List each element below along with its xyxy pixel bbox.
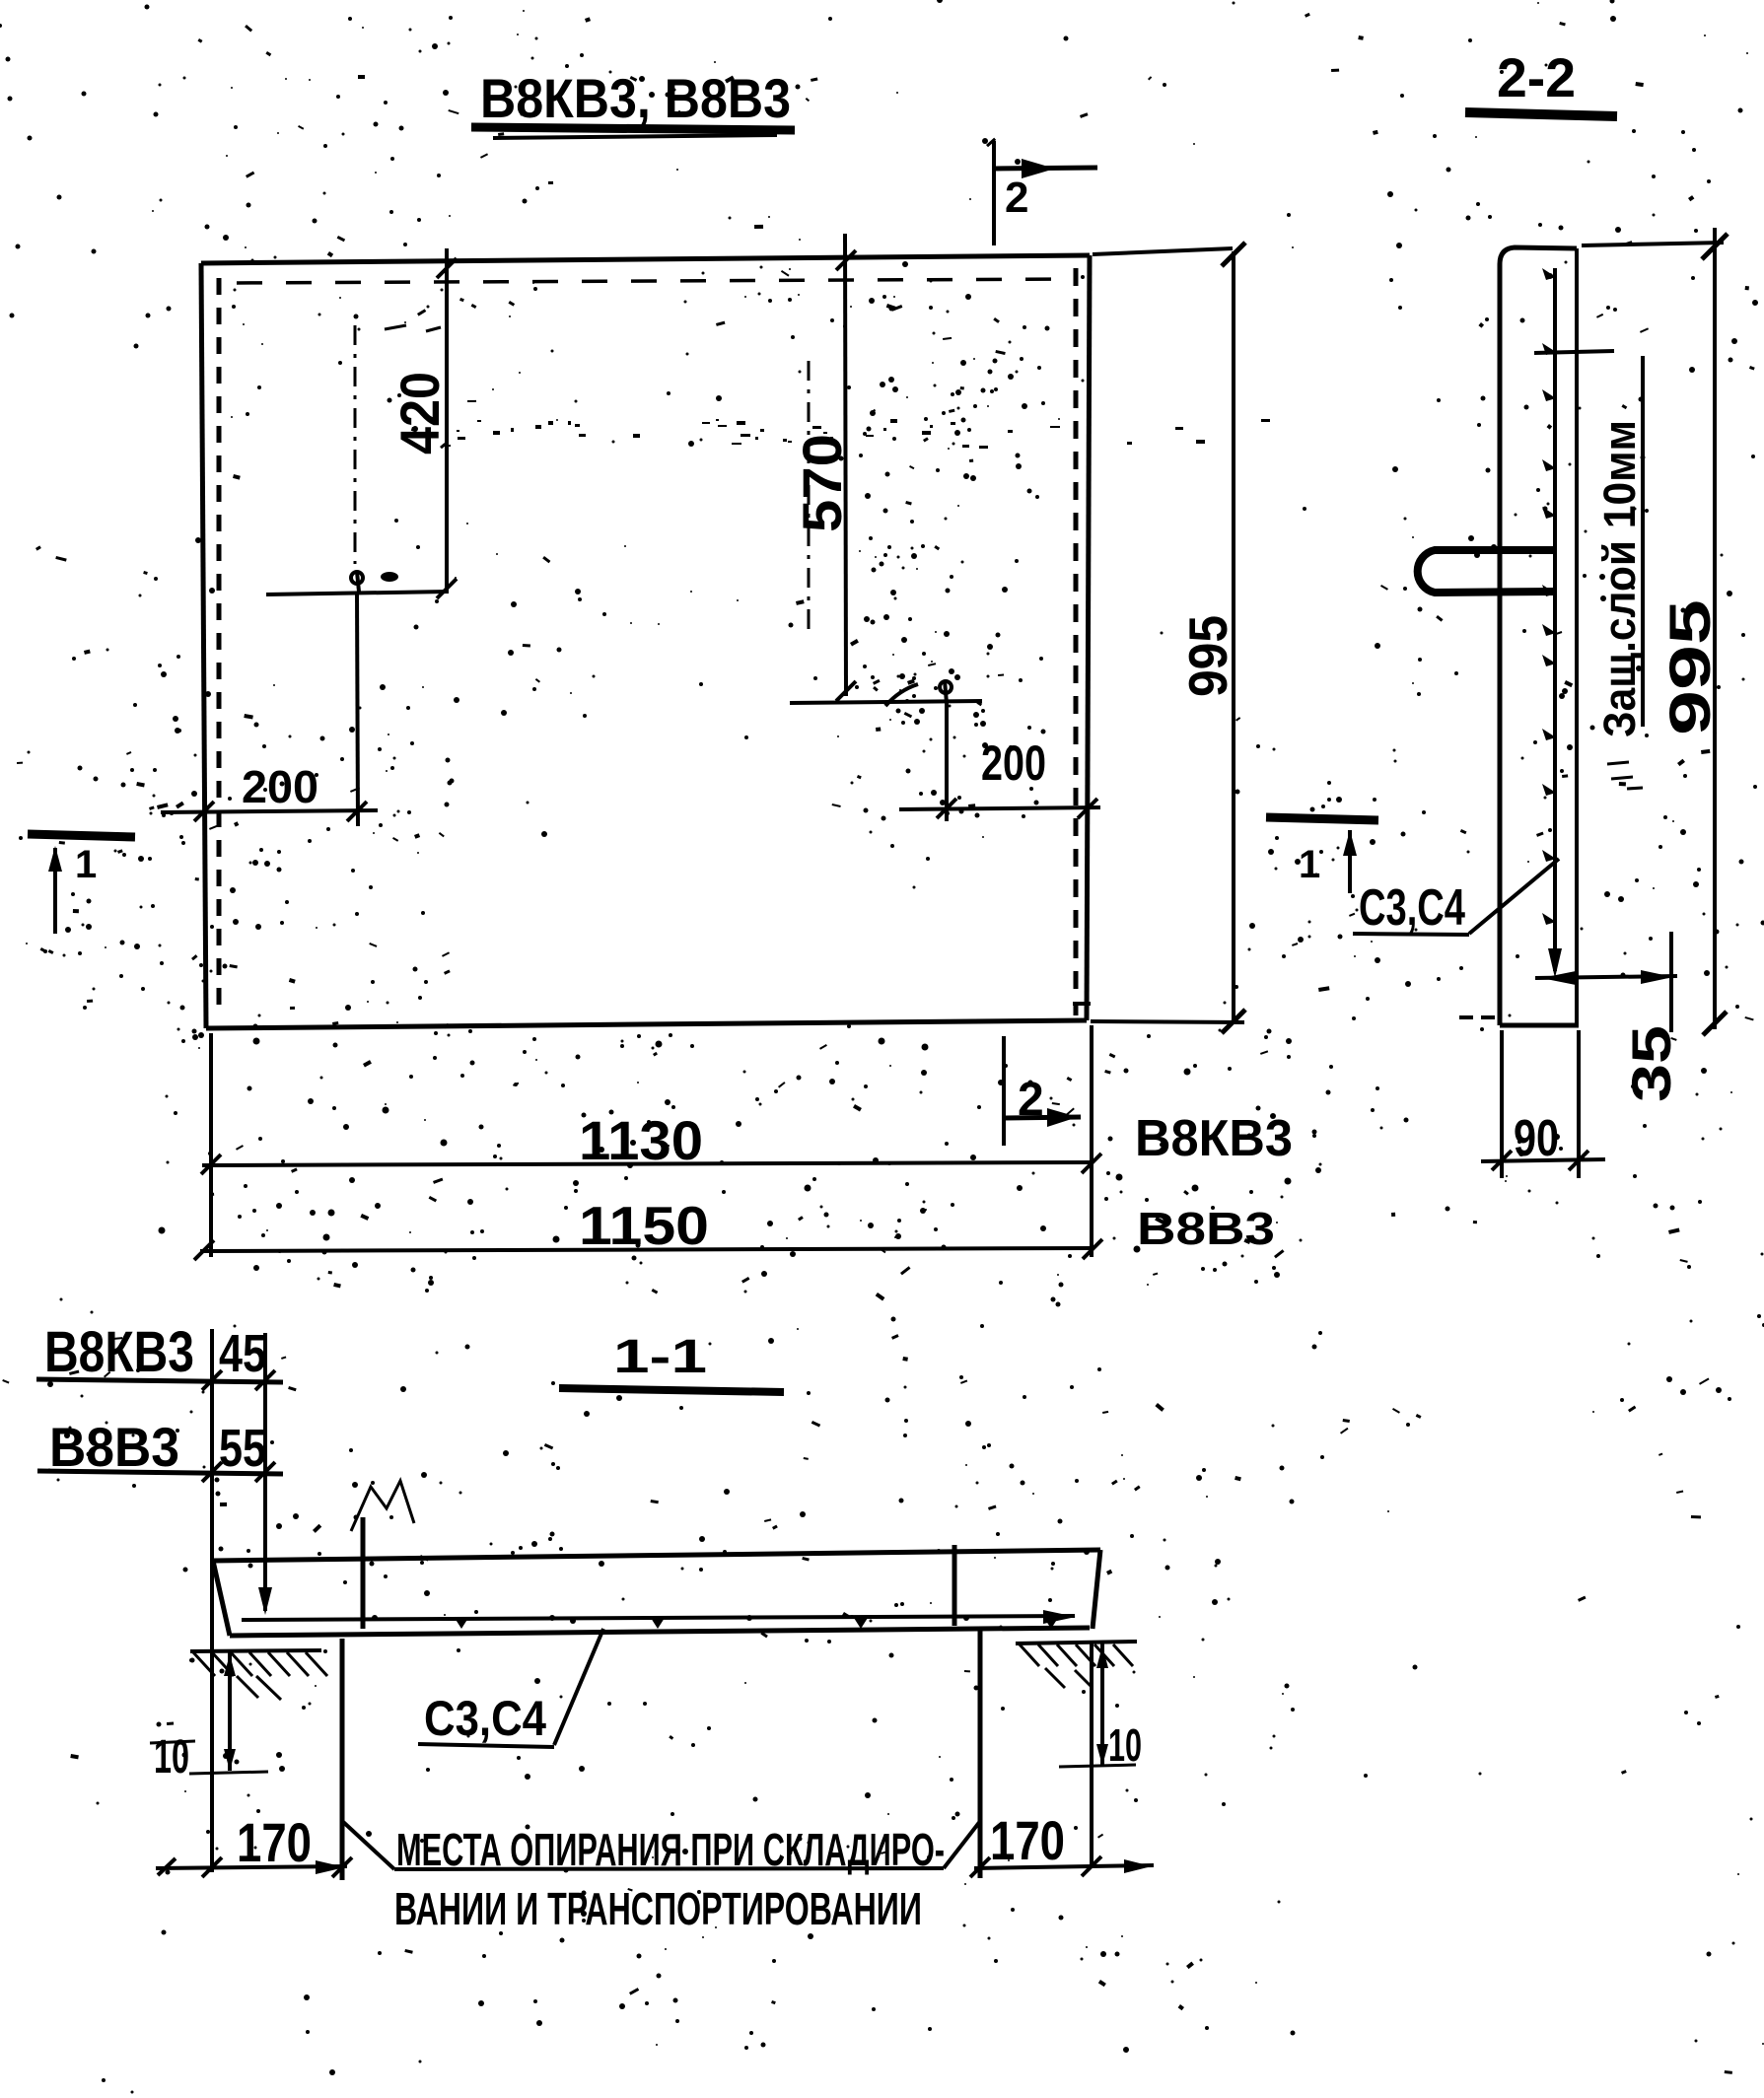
- svg-text:10: 10: [154, 1731, 189, 1783]
- svg-text:ВАНИИ И ТРАНСПОРТИРОВАНИИ: ВАНИИ И ТРАНСПОРТИРОВАНИИ: [394, 1883, 922, 1934]
- svg-text:С3,С4: С3,С4: [1359, 879, 1465, 937]
- svg-text:В8КВ3, В8В3: В8КВ3, В8В3: [480, 67, 791, 129]
- svg-text:35: 35: [1620, 1025, 1682, 1102]
- svg-text:1: 1: [1299, 843, 1320, 886]
- svg-text:2: 2: [1005, 174, 1028, 222]
- svg-text:570: 570: [791, 434, 853, 532]
- svg-text:200: 200: [242, 761, 318, 812]
- svg-text:1150: 1150: [579, 1195, 709, 1256]
- svg-text:170: 170: [990, 1809, 1065, 1871]
- svg-text:90: 90: [1514, 1110, 1559, 1167]
- svg-text:1130: 1130: [579, 1109, 703, 1171]
- svg-text:10: 10: [1108, 1719, 1142, 1771]
- svg-text:В8КВ3: В8КВ3: [44, 1320, 194, 1384]
- svg-text:55: 55: [219, 1419, 266, 1478]
- svg-text:В8КВ3: В8КВ3: [1135, 1110, 1293, 1167]
- svg-text:170: 170: [237, 1811, 312, 1873]
- svg-text:995: 995: [1177, 615, 1238, 697]
- svg-text:2-2: 2-2: [1497, 46, 1576, 108]
- svg-text:МЕСТА ОПИРАНИЯ ПРИ СКЛАДИРО-: МЕСТА ОПИРАНИЯ ПРИ СКЛАДИРО-: [396, 1824, 945, 1875]
- svg-text:В8В3: В8В3: [49, 1416, 179, 1478]
- svg-text:45: 45: [219, 1324, 266, 1383]
- svg-text:1-1: 1-1: [613, 1331, 707, 1383]
- svg-text:С3,С4: С3,С4: [424, 1691, 546, 1746]
- svg-text:1: 1: [75, 843, 97, 886]
- svg-text:200: 200: [981, 735, 1046, 791]
- svg-text:420: 420: [388, 372, 451, 455]
- svg-text:В8В3: В8В3: [1137, 1203, 1275, 1254]
